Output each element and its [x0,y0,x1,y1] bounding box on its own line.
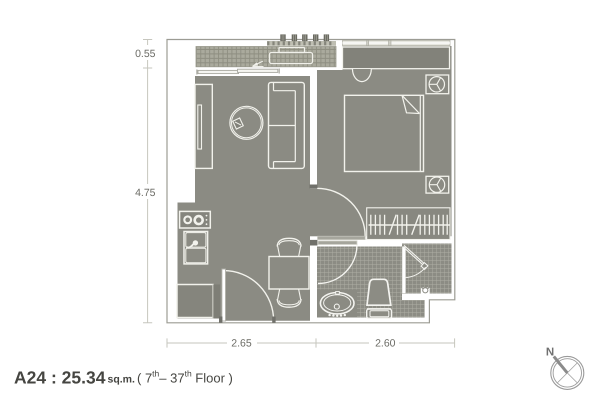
svg-text:A24 : 25.34: A24 : 25.34 [14,367,106,387]
svg-text:2.60: 2.60 [375,338,396,350]
svg-text:0.55: 0.55 [135,48,156,60]
svg-text:sq.m.: sq.m. [108,374,136,386]
svg-text:4.75: 4.75 [135,187,156,199]
svg-text:2.65: 2.65 [231,338,252,350]
svg-text:N: N [546,347,554,359]
